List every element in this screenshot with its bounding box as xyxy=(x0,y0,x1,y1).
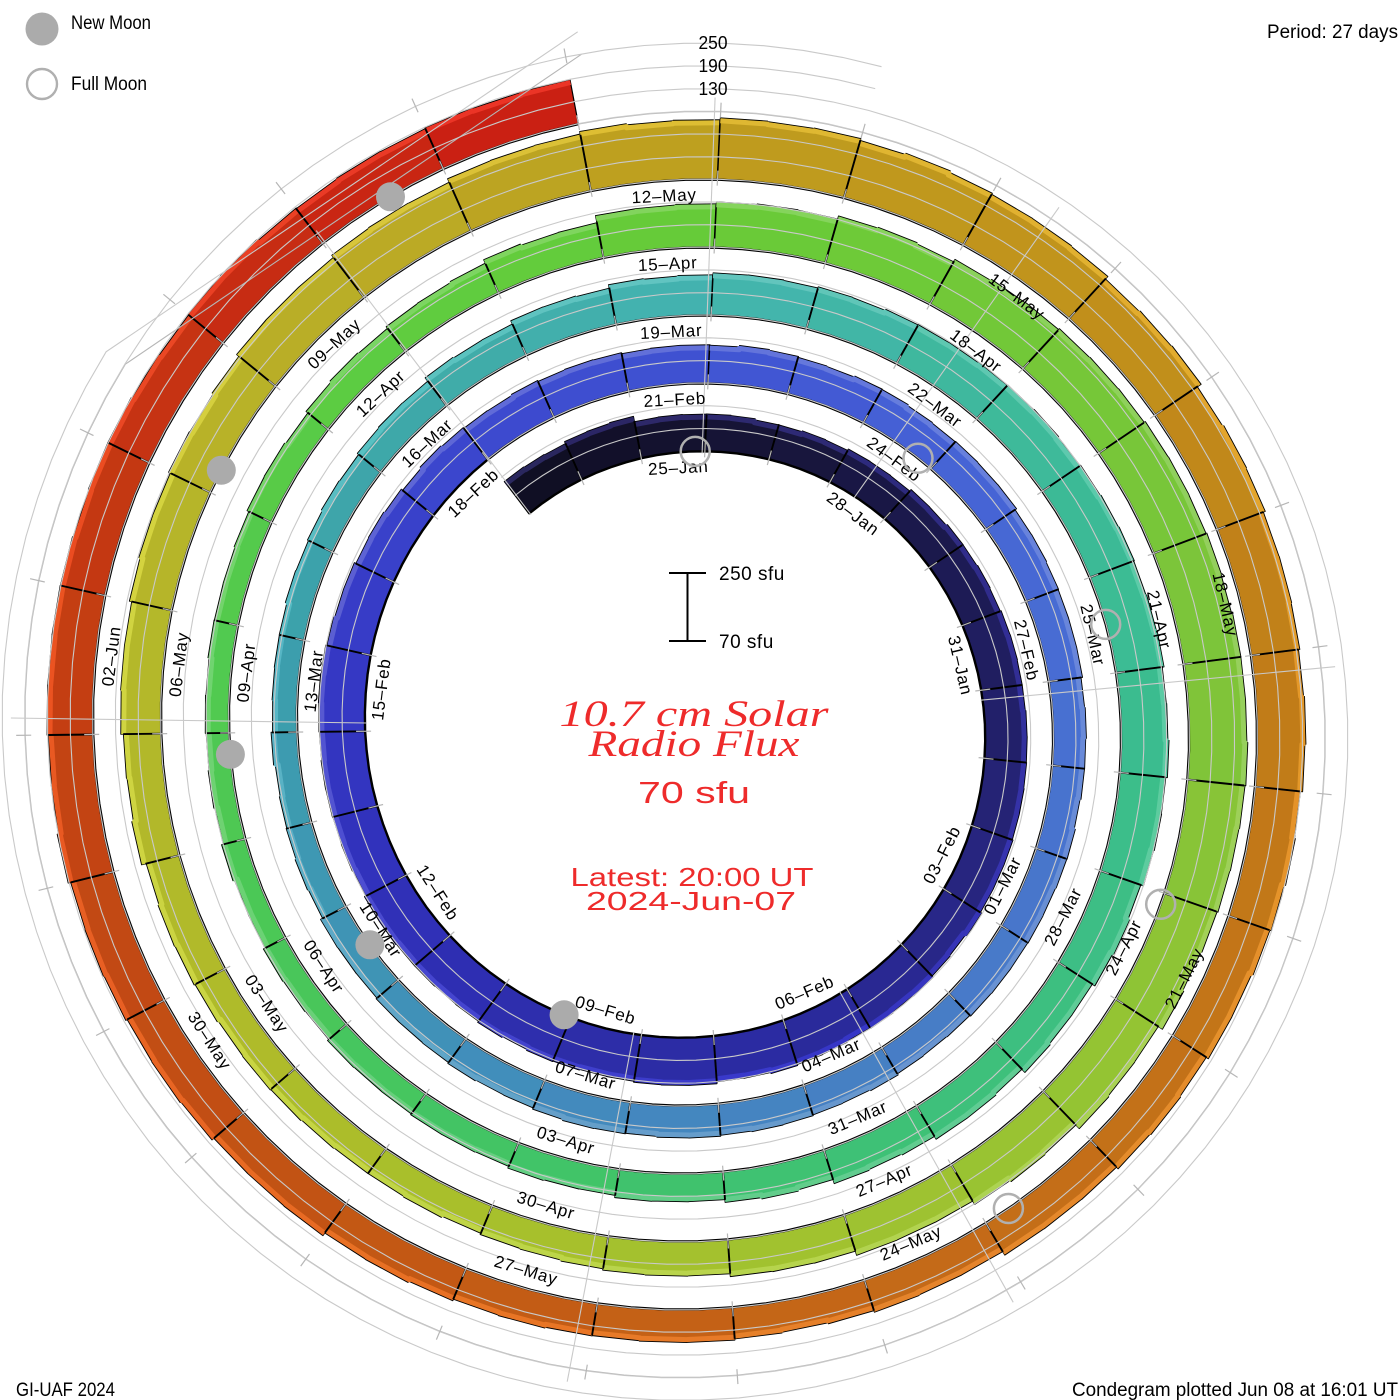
svg-text:190: 190 xyxy=(699,56,728,76)
svg-text:12–May: 12–May xyxy=(631,185,697,207)
svg-text:GI-UAF 2024: GI-UAF 2024 xyxy=(16,1380,115,1400)
svg-text:70 sfu: 70 sfu xyxy=(719,632,774,653)
svg-text:19–Mar: 19–Mar xyxy=(640,321,703,343)
svg-text:70 sfu: 70 sfu xyxy=(638,775,750,810)
svg-text:New Moon: New Moon xyxy=(71,13,151,34)
svg-text:Full Moon: Full Moon xyxy=(71,74,147,95)
svg-text:130: 130 xyxy=(699,79,728,99)
svg-text:21–Feb: 21–Feb xyxy=(643,389,706,411)
svg-text:Radio Flux: Radio Flux xyxy=(587,724,800,765)
svg-text:250: 250 xyxy=(699,33,728,53)
svg-text:2024-Jun-07: 2024-Jun-07 xyxy=(586,886,796,916)
svg-text:250 sfu: 250 sfu xyxy=(719,564,785,585)
svg-text:Period: 27 days: Period: 27 days xyxy=(1267,22,1398,43)
svg-text:Condegram plotted Jun 08 at 16: Condegram plotted Jun 08 at 16:01 UT xyxy=(1072,1380,1398,1400)
svg-text:25–Jan: 25–Jan xyxy=(648,457,709,479)
svg-text:15–Apr: 15–Apr xyxy=(637,253,698,275)
